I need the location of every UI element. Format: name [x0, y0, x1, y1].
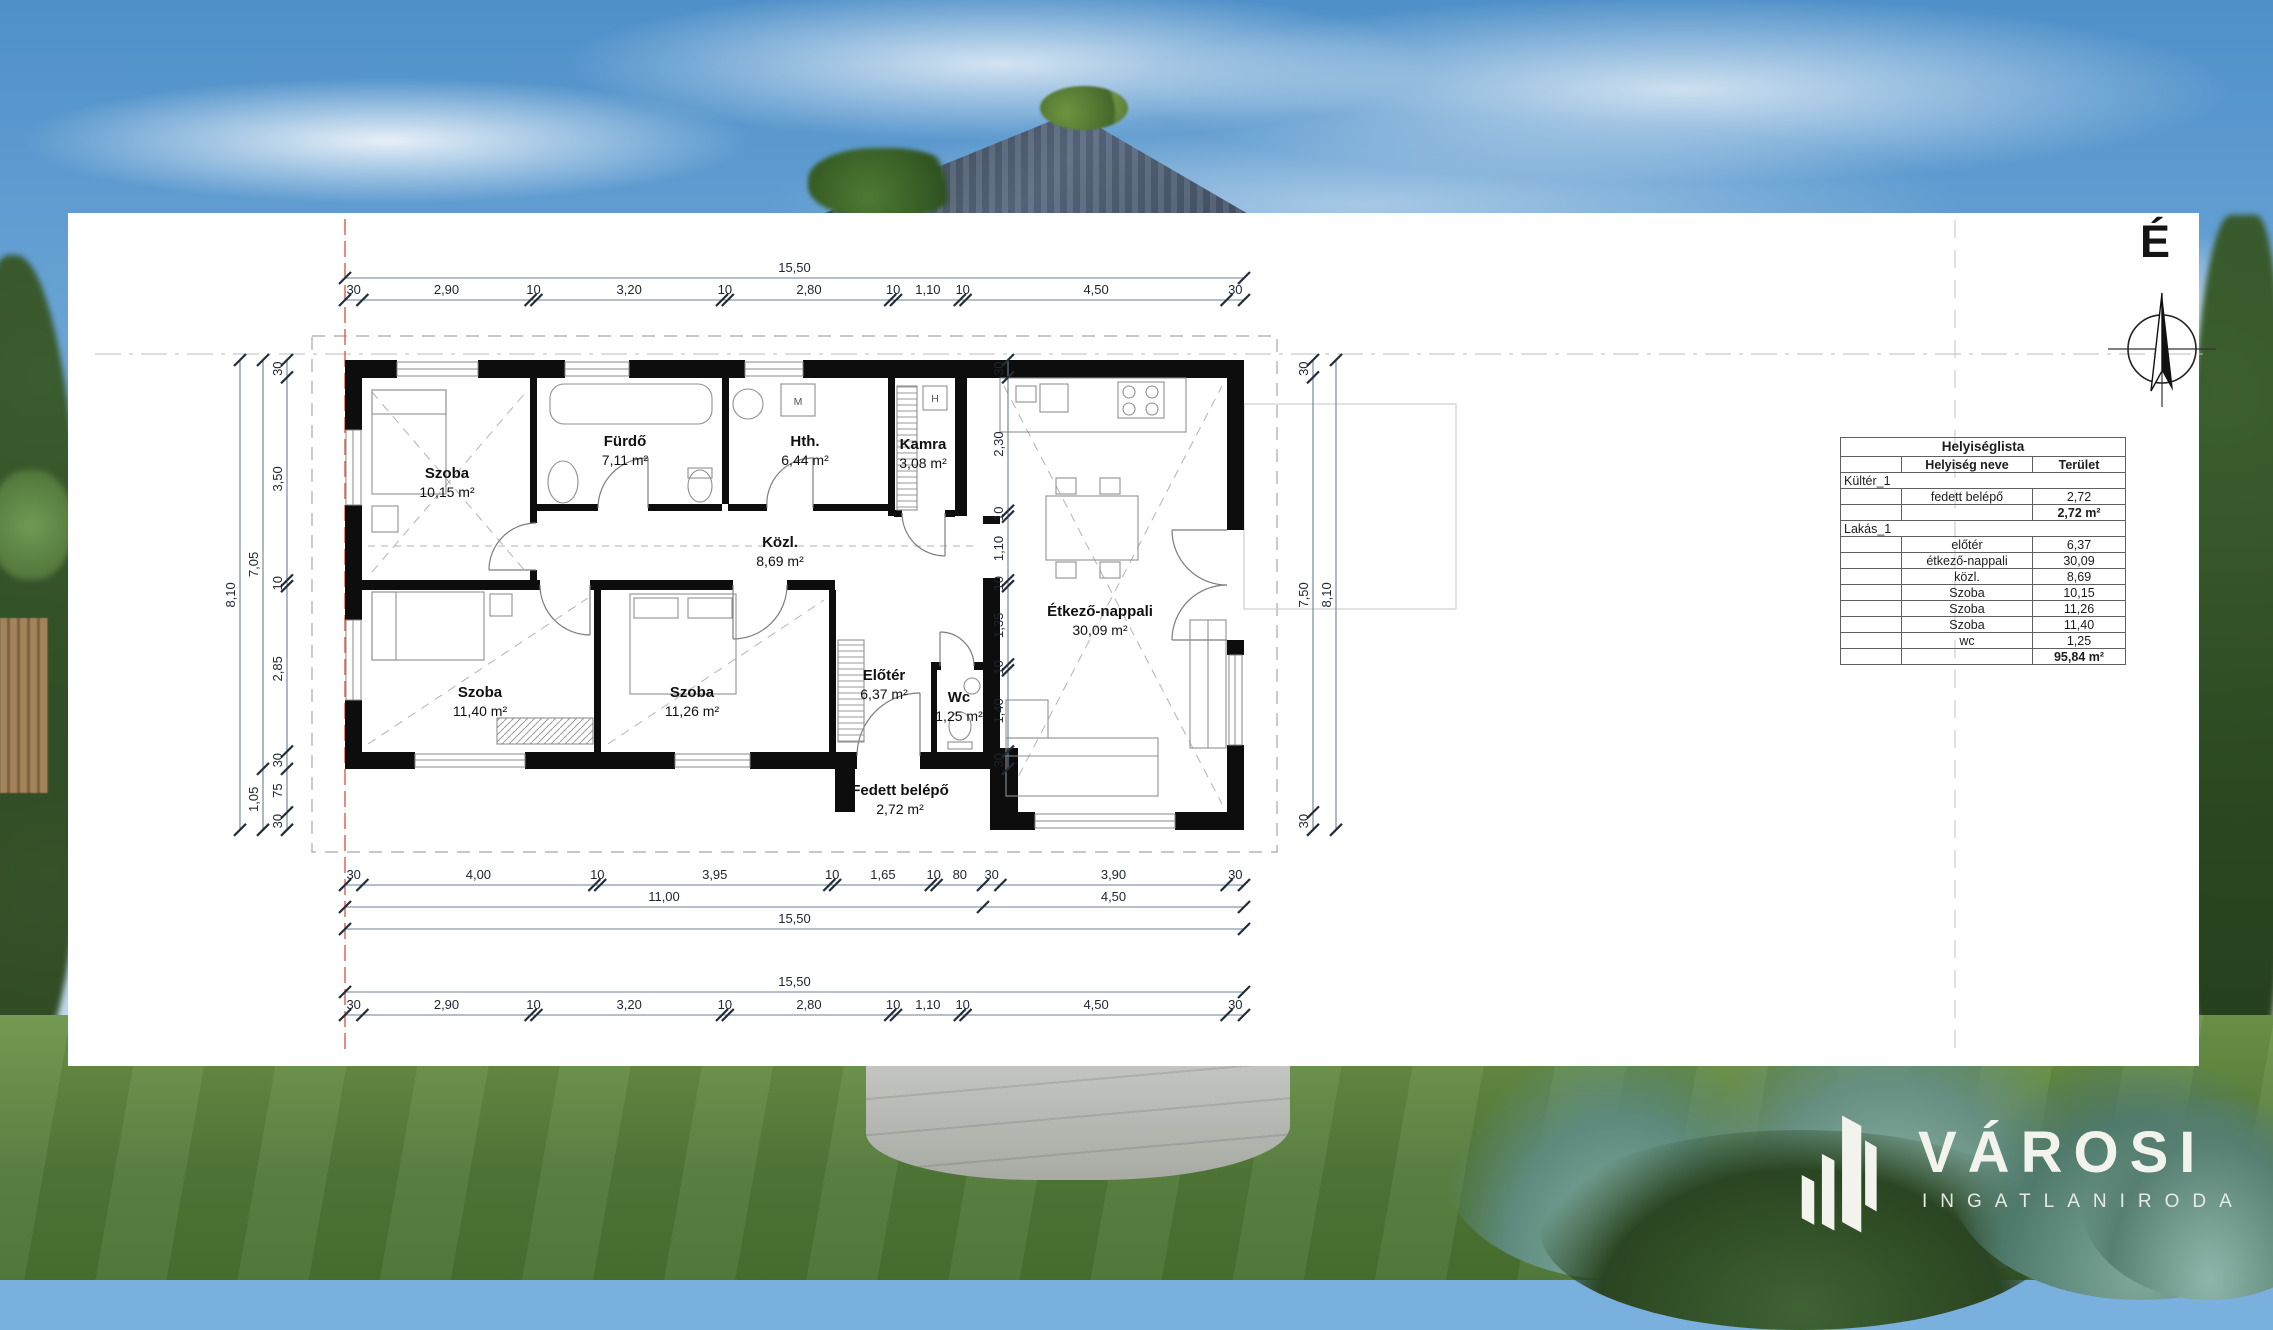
table-row: étkező-nappali30,09 — [1841, 553, 2126, 569]
hedge-left — [0, 470, 72, 580]
table-row: közl.8,69 — [1841, 569, 2126, 585]
table-subtotal-row: 2,72 m² — [1841, 505, 2126, 521]
table-row: wc1,25 — [1841, 633, 2126, 649]
wooden-fence — [0, 618, 48, 793]
brand-logo: VÁROSI INGATLANIRODA — [1796, 1110, 2266, 1238]
table-row: Szoba11,26 — [1841, 601, 2126, 617]
roof-plant — [1040, 86, 1128, 130]
brand-name: VÁROSI — [1918, 1124, 2245, 1182]
room-list-table: Helyiséglista Helyiség neve Terület Kült… — [1840, 437, 2126, 665]
paved-path — [866, 1062, 1290, 1180]
brand-subtitle: INGATLANIRODA — [1922, 1191, 2245, 1213]
buildings-icon — [1796, 1110, 1892, 1238]
table-row: fedett belépő2,72 — [1841, 489, 2126, 505]
table-row: előtér6,37 — [1841, 537, 2126, 553]
tree-right — [2186, 215, 2273, 1105]
room-table-title: Helyiséglista — [1841, 438, 2126, 457]
table-subtotal-row: 95,84 m² — [1841, 649, 2126, 665]
north-label: É — [2140, 216, 2170, 268]
room-table-header: Helyiség neve Terület — [1841, 457, 2126, 473]
table-group-row: Lakás_1 — [1841, 521, 2126, 537]
table-row: Szoba11,40 — [1841, 617, 2126, 633]
table-group-row: Kültér_1 — [1841, 473, 2126, 489]
table-row: Szoba10,15 — [1841, 585, 2126, 601]
roof-side-foliage — [808, 148, 958, 218]
